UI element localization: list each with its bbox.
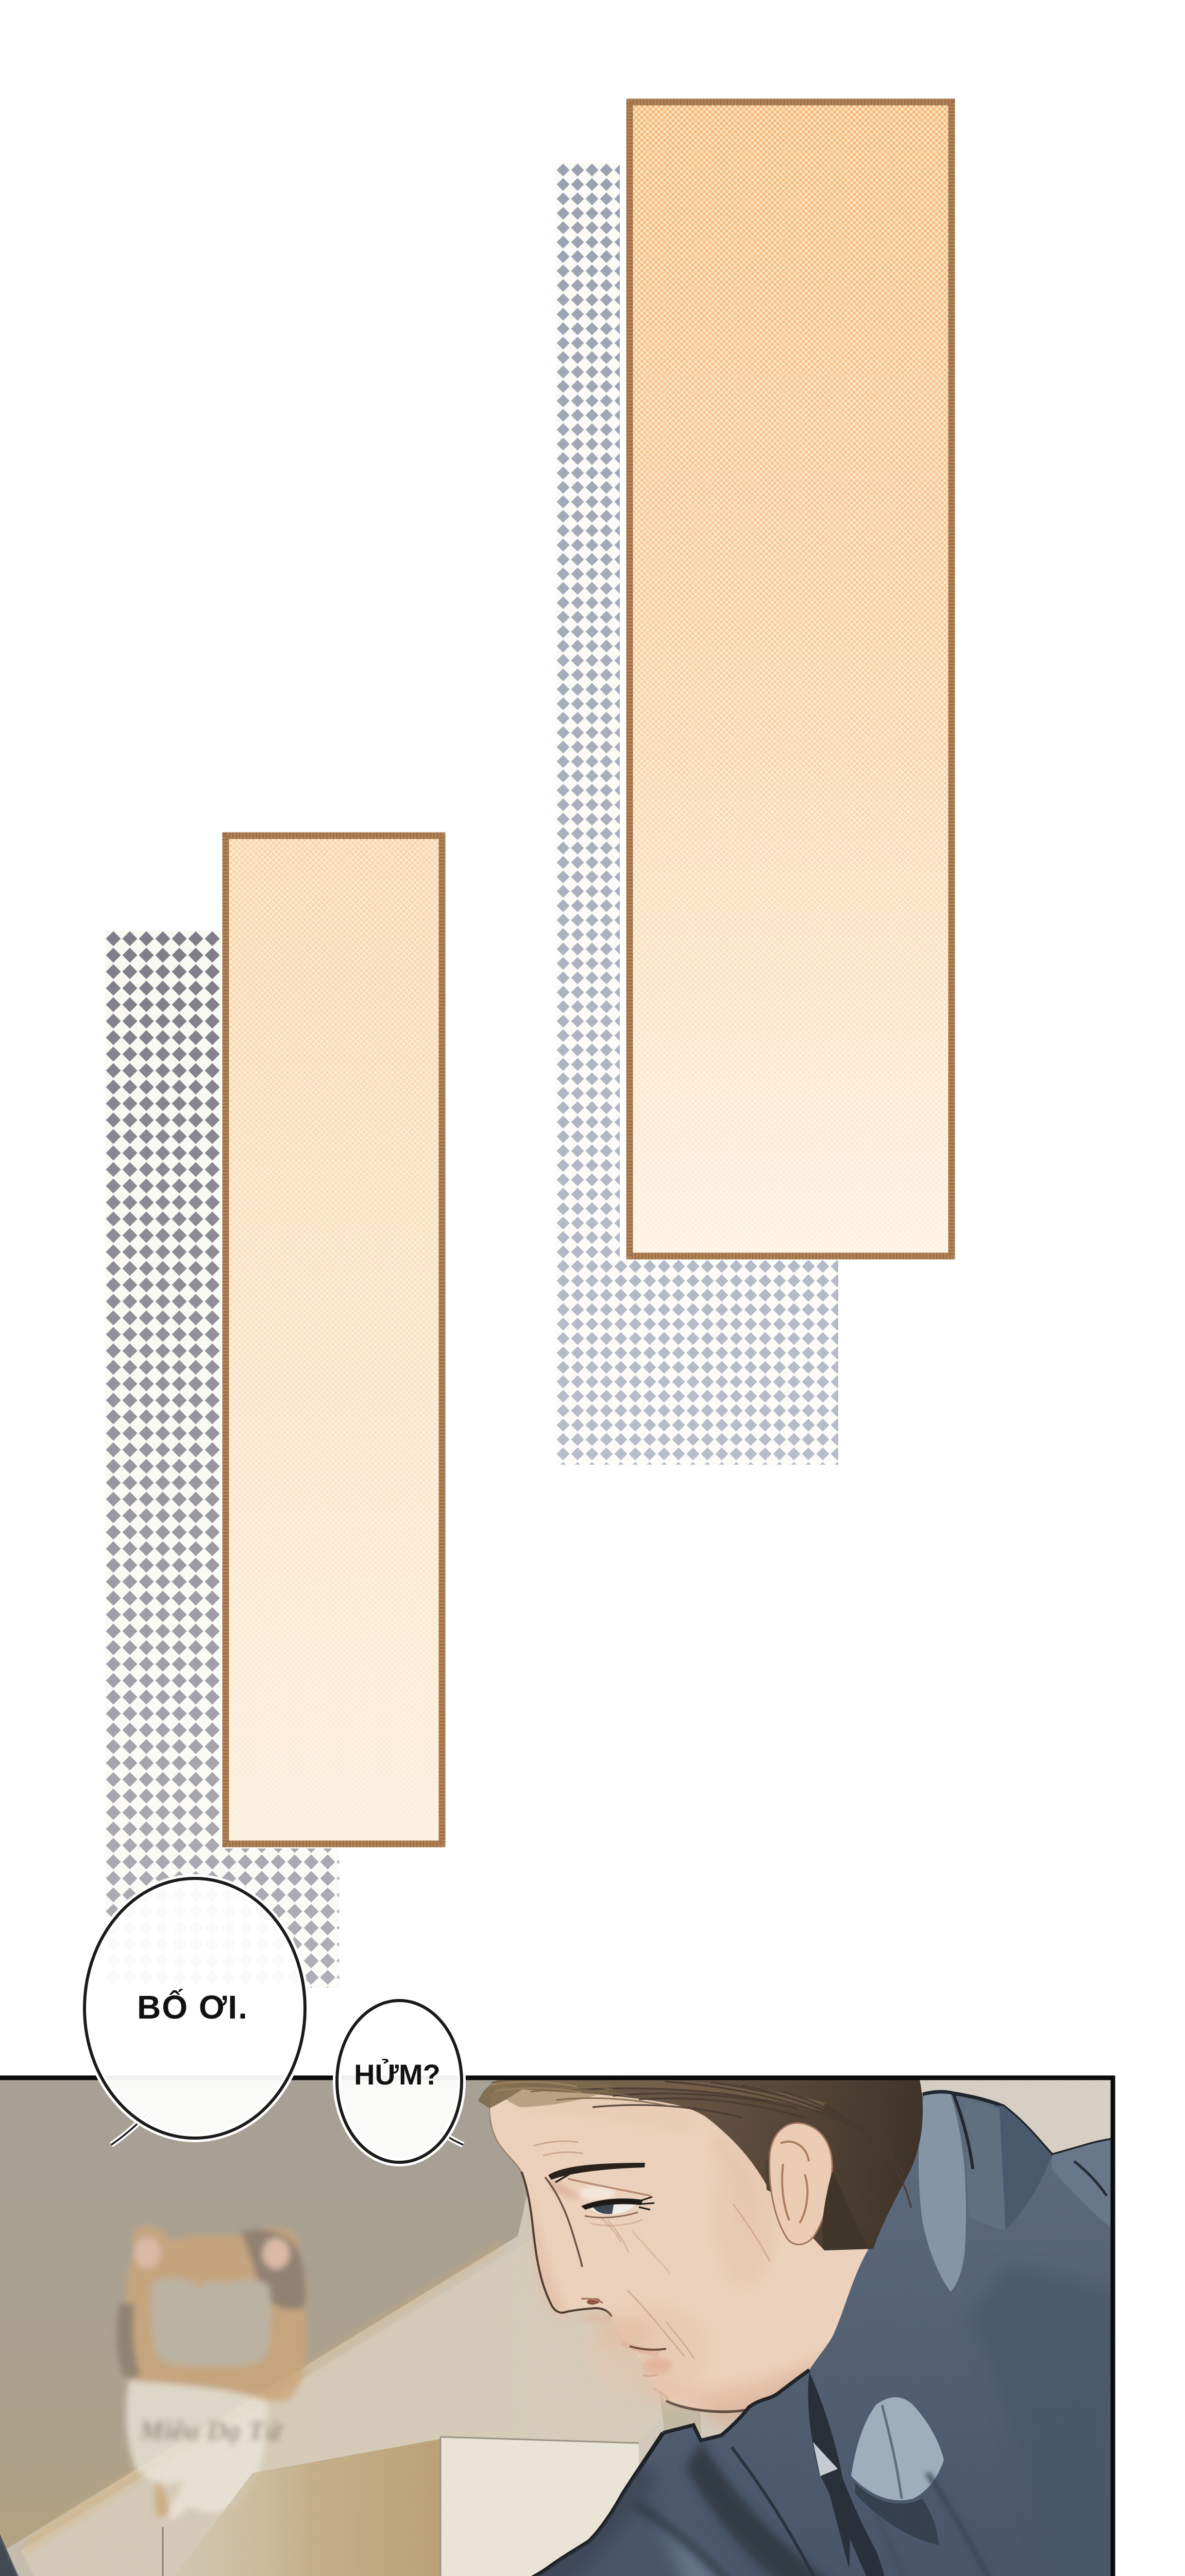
svg-text:BỐ ƠI.: BỐ ƠI.: [137, 1989, 248, 2026]
svg-text:HỬM?: HỬM?: [354, 2058, 441, 2091]
